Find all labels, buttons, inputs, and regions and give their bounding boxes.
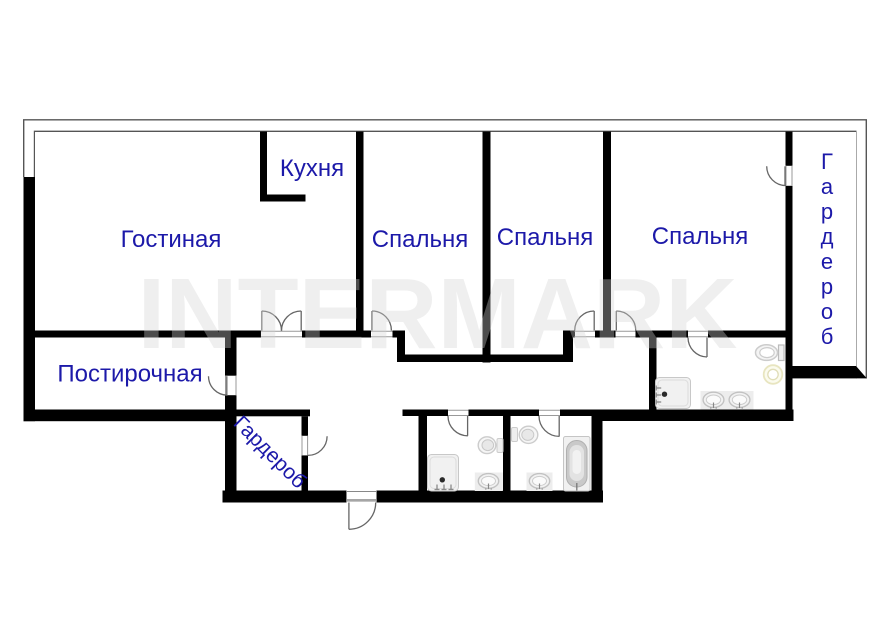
svg-text:а: а	[821, 174, 834, 199]
svg-text:Гостиная: Гостиная	[121, 226, 222, 253]
svg-text:Г: Г	[821, 149, 833, 174]
svg-text:д: д	[821, 224, 834, 249]
svg-text:Спальня: Спальня	[372, 226, 468, 253]
svg-text:Спальня: Спальня	[652, 223, 748, 250]
svg-text:INTERMARK: INTERMARK	[138, 258, 738, 370]
svg-text:е: е	[821, 249, 833, 274]
svg-text:Спальня: Спальня	[497, 224, 593, 251]
svg-text:р: р	[821, 199, 833, 224]
svg-text:о: о	[821, 299, 833, 324]
svg-text:р: р	[821, 274, 833, 299]
svg-text:б: б	[821, 324, 834, 349]
svg-text:Кухня: Кухня	[280, 155, 344, 182]
